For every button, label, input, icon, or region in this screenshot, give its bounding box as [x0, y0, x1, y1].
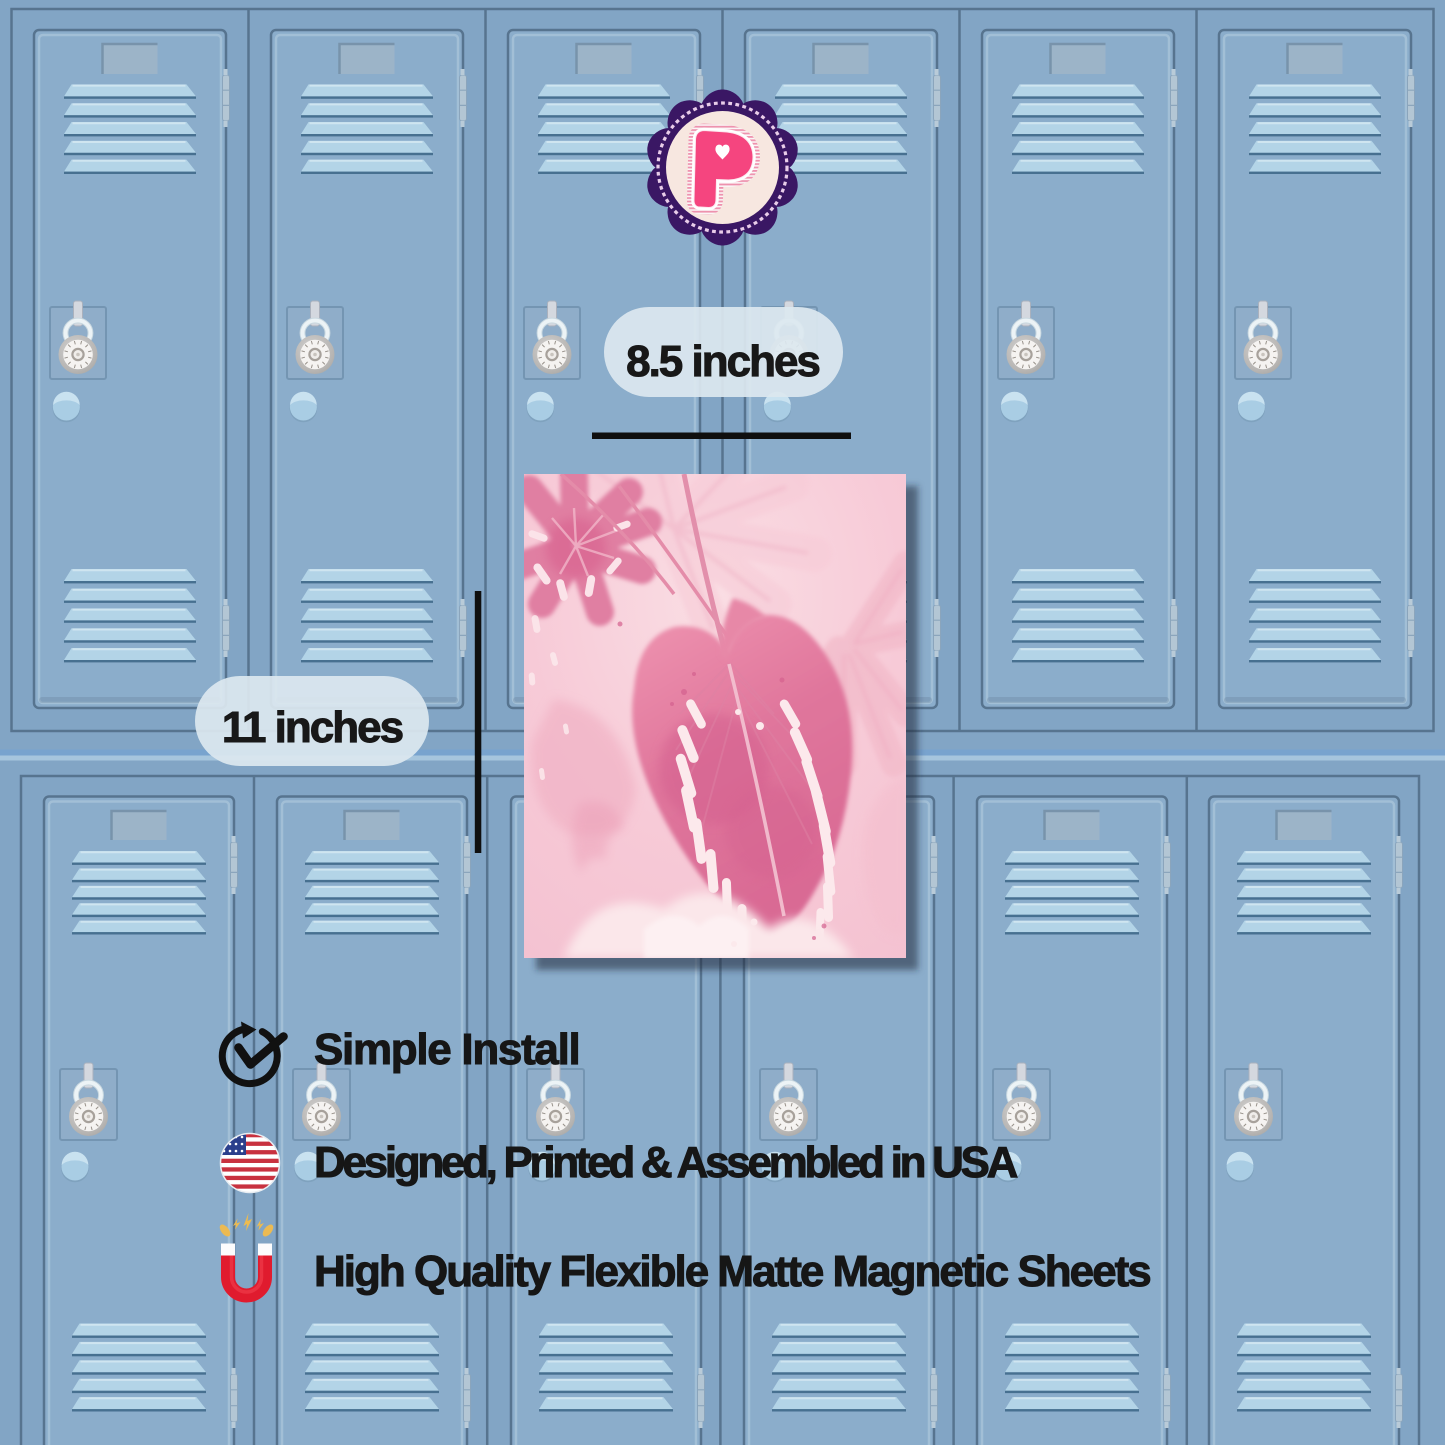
- svg-text:Simple Install: Simple Install: [314, 1025, 579, 1074]
- svg-text:8.5 inches: 8.5 inches: [626, 337, 819, 386]
- svg-text:High Quality Flexible Matte Ma: High Quality Flexible Matte Magnetic She…: [314, 1247, 1150, 1296]
- svg-text:Designed, Printed & Assembled: Designed, Printed & Assembled in USA: [314, 1138, 1018, 1187]
- svg-text:11 inches: 11 inches: [222, 703, 403, 752]
